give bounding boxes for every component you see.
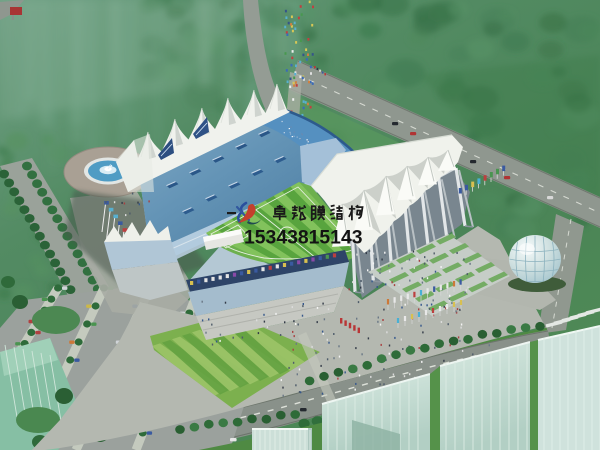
- svg-text:15343815143: 15343815143: [244, 227, 363, 248]
